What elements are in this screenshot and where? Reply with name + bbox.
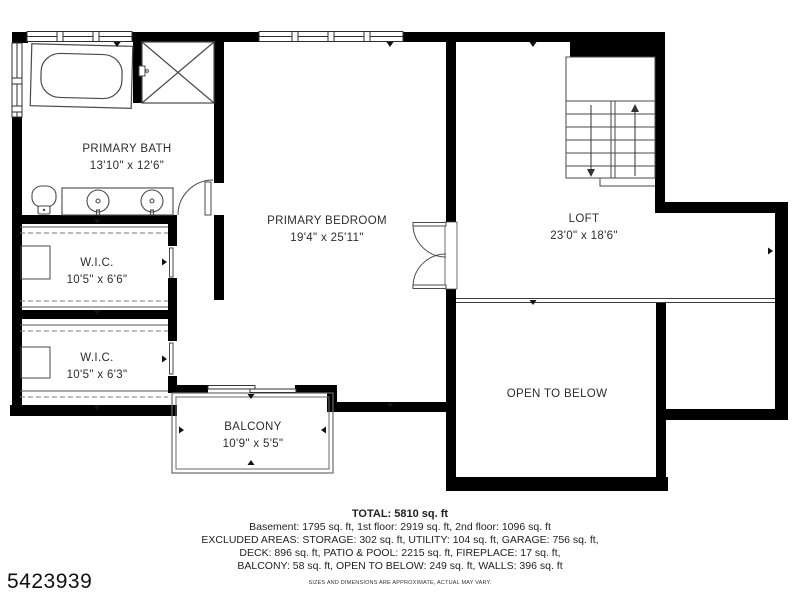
summary-line: EXCLUDED AREAS: STORAGE: 302 sq. ft, UTI… xyxy=(0,534,800,547)
dimension-ticks xyxy=(94,42,774,465)
loft-railing xyxy=(456,299,775,303)
room-name: LOFT xyxy=(550,211,618,228)
room-name: W.I.C. xyxy=(67,350,128,367)
summary-line: DECK: 896 sq. ft, PATIO & POOL: 2215 sq.… xyxy=(0,547,800,560)
sliding-door xyxy=(208,386,296,393)
floor-plan: PRIMARY BATH 13'10" x 12'6" PRIMARY BEDR… xyxy=(0,0,800,600)
total-area: TOTAL: 5810 sq. ft xyxy=(0,507,800,521)
room-label-wic-lower: W.I.C. 10'5" x 6'3" xyxy=(67,350,128,384)
toilet xyxy=(32,186,56,214)
listing-id: 5423939 xyxy=(7,570,92,594)
room-name: BALCONY xyxy=(223,419,284,436)
room-dims: 13'10" x 12'6" xyxy=(82,158,171,175)
summary-line: Basement: 1795 sq. ft, 1st floor: 2919 s… xyxy=(0,521,800,534)
room-dims: 10'9" x 5'5" xyxy=(223,436,284,453)
room-name: PRIMARY BATH xyxy=(82,141,171,158)
summary-line: BALCONY: 58 sq. ft, OPEN TO BELOW: 249 s… xyxy=(0,560,800,573)
room-label-balcony: BALCONY 10'9" x 5'5" xyxy=(223,419,284,453)
area-summary: TOTAL: 5810 sq. ft Basement: 1795 sq. ft… xyxy=(0,507,800,587)
double-vanity xyxy=(62,188,173,215)
room-label-loft: LOFT 23'0" x 18'6" xyxy=(550,211,618,245)
staircase xyxy=(566,57,655,186)
french-doors xyxy=(413,222,457,289)
room-dims: 10'5" x 6'3" xyxy=(67,367,128,384)
room-dims: 23'0" x 18'6" xyxy=(550,228,618,245)
room-dims: 10'5" x 6'6" xyxy=(67,272,128,289)
room-label-primary-bedroom: PRIMARY BEDROOM 19'4" x 25'11" xyxy=(267,213,387,247)
room-label-open-to-below: OPEN TO BELOW xyxy=(507,386,608,403)
room-label-wic-upper: W.I.C. 10'5" x 6'6" xyxy=(67,255,128,289)
room-name: PRIMARY BEDROOM xyxy=(267,213,387,230)
room-name: OPEN TO BELOW xyxy=(507,386,608,403)
bath-door xyxy=(178,180,213,215)
disclaimer: SIZES AND DIMENSIONS ARE APPROXIMATE, AC… xyxy=(0,579,800,587)
bathtub xyxy=(30,44,133,109)
room-label-primary-bath: PRIMARY BATH 13'10" x 12'6" xyxy=(82,141,171,175)
shower xyxy=(139,42,214,103)
room-dims: 19'4" x 25'11" xyxy=(267,230,387,247)
room-name: W.I.C. xyxy=(67,255,128,272)
